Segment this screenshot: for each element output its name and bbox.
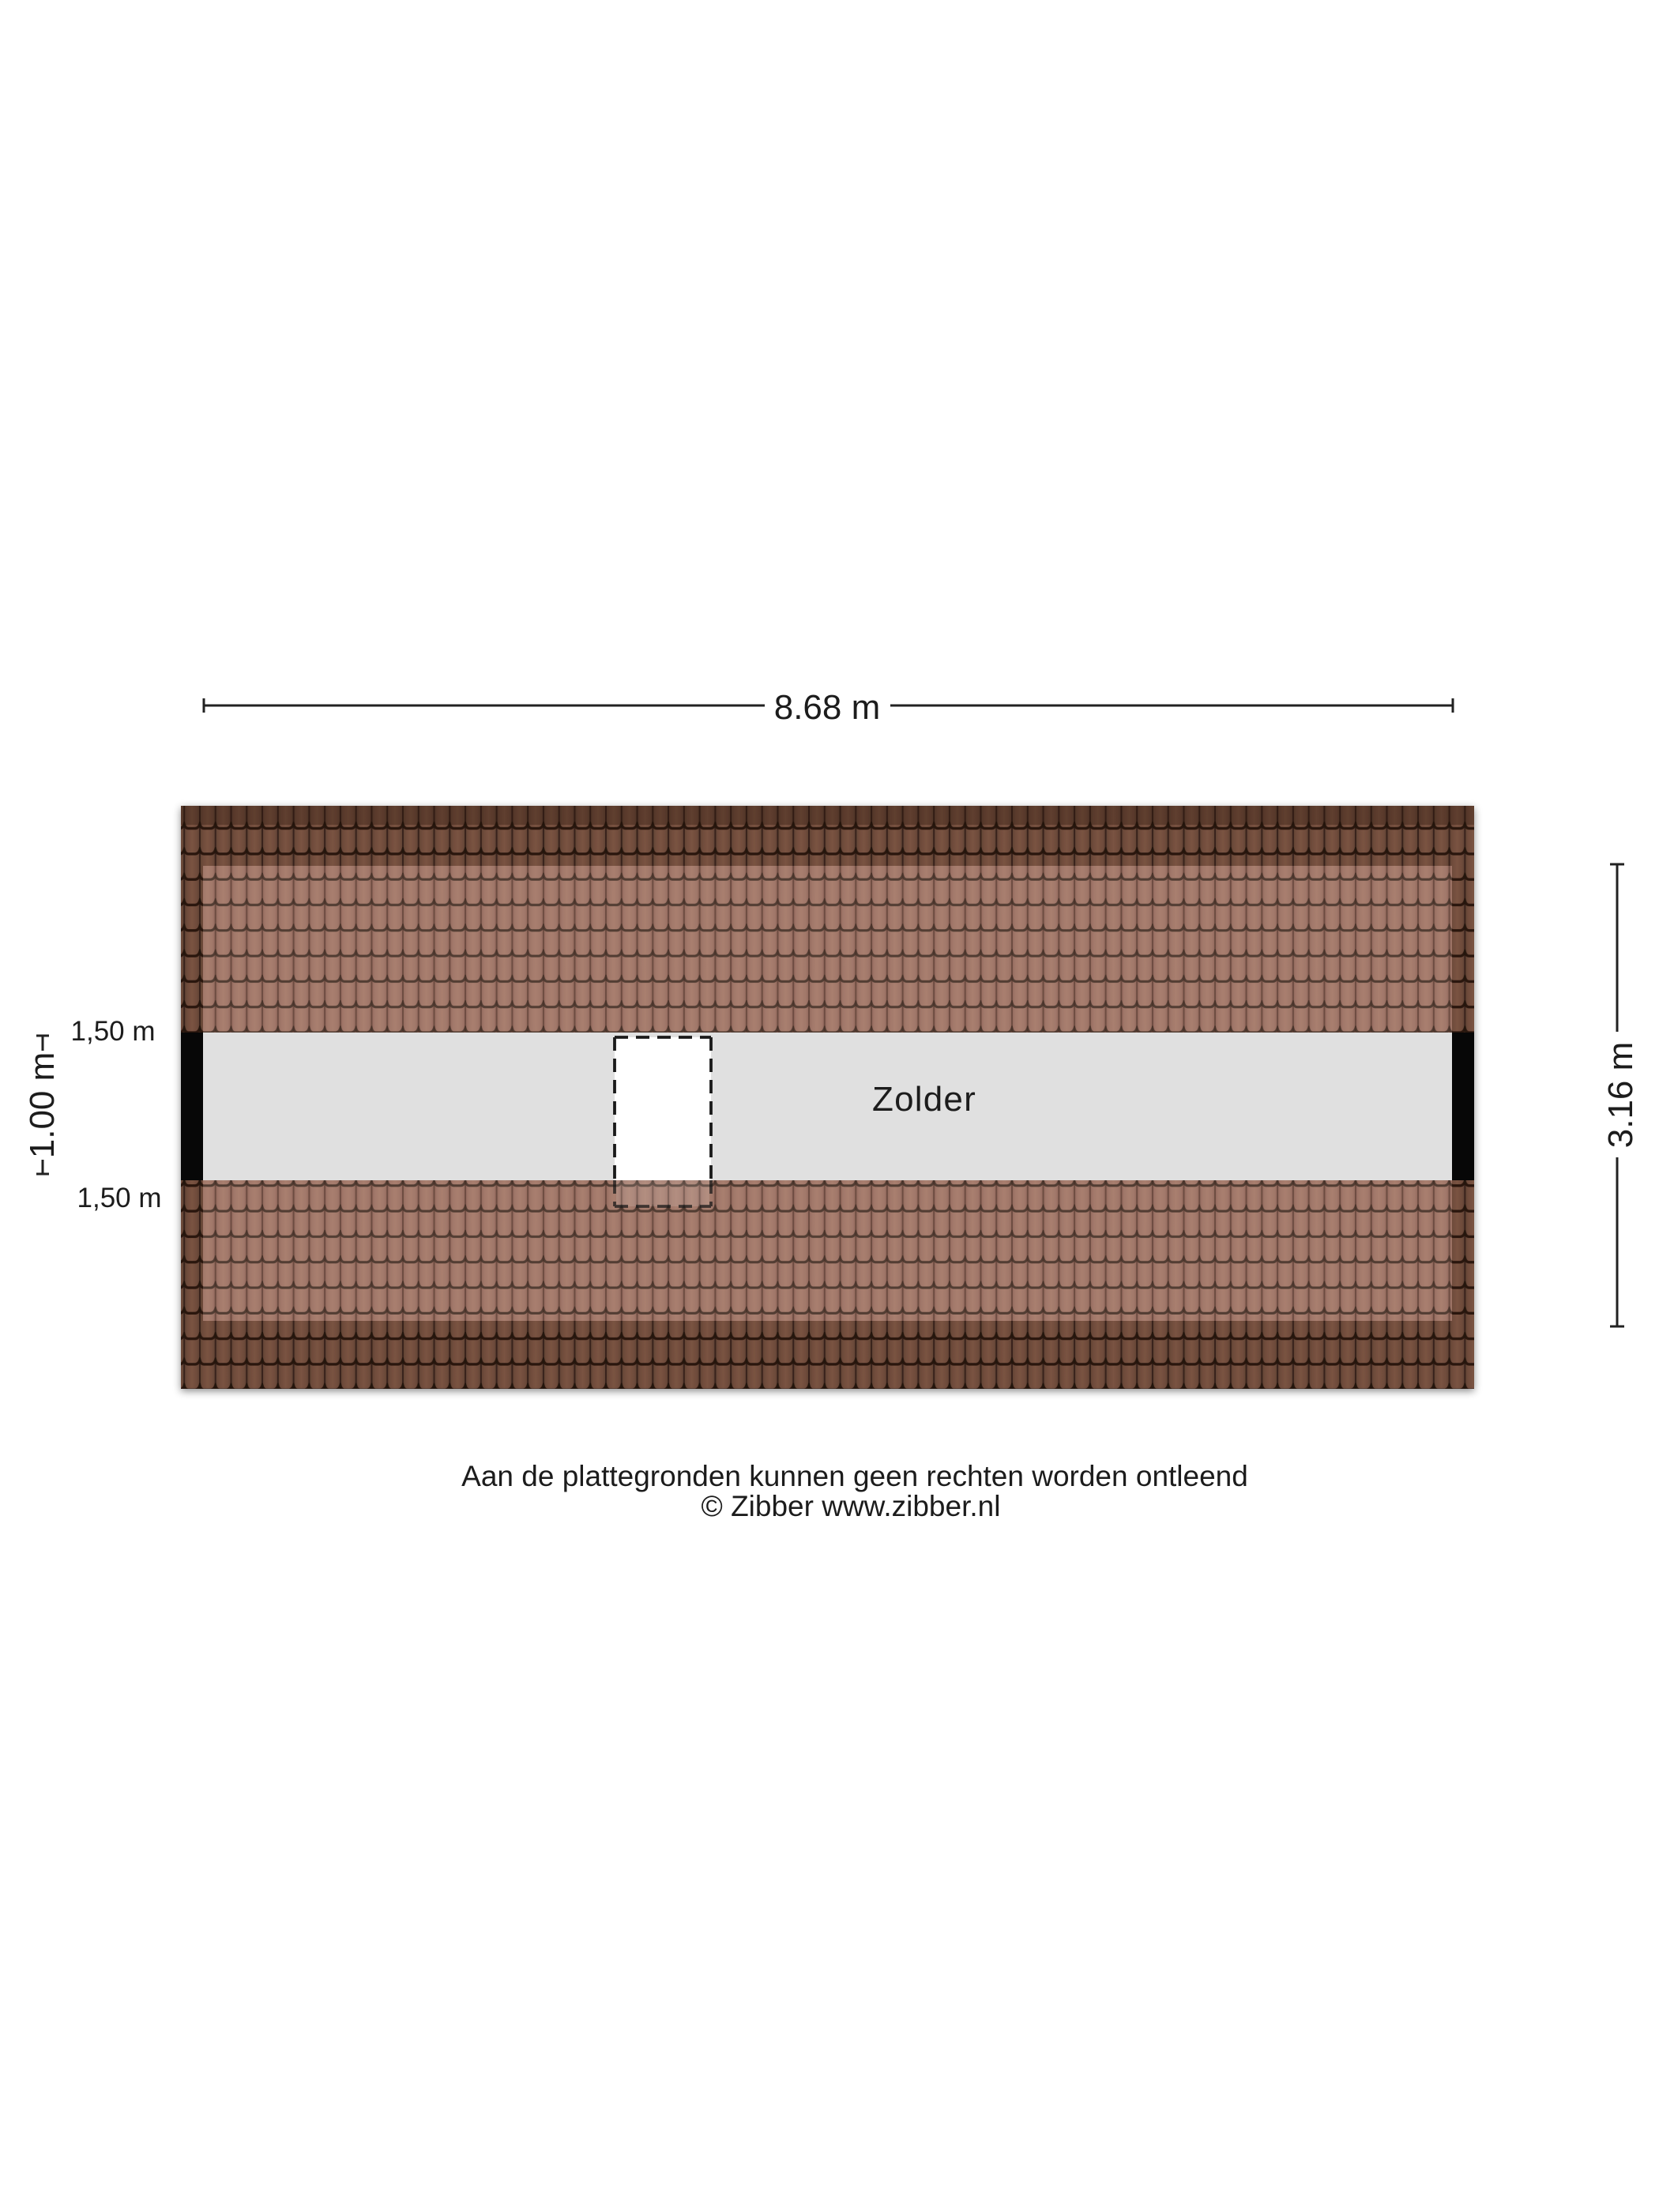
svg-text:1.00 m: 1.00 m [23,1052,62,1159]
svg-text:1,50 m: 1,50 m [71,1016,156,1047]
svg-text:3.16 m: 3.16 m [1601,1042,1640,1149]
svg-text:8.68 m: 8.68 m [774,688,881,727]
svg-text:Zolder: Zolder [872,1080,976,1119]
svg-text:1,50 m: 1,50 m [77,1183,162,1213]
svg-text:Aan de plattegronden kunnen ge: Aan de plattegronden kunnen geen rechten… [461,1460,1248,1492]
svg-text:© Zibber www.zibber.nl: © Zibber www.zibber.nl [702,1490,1001,1522]
